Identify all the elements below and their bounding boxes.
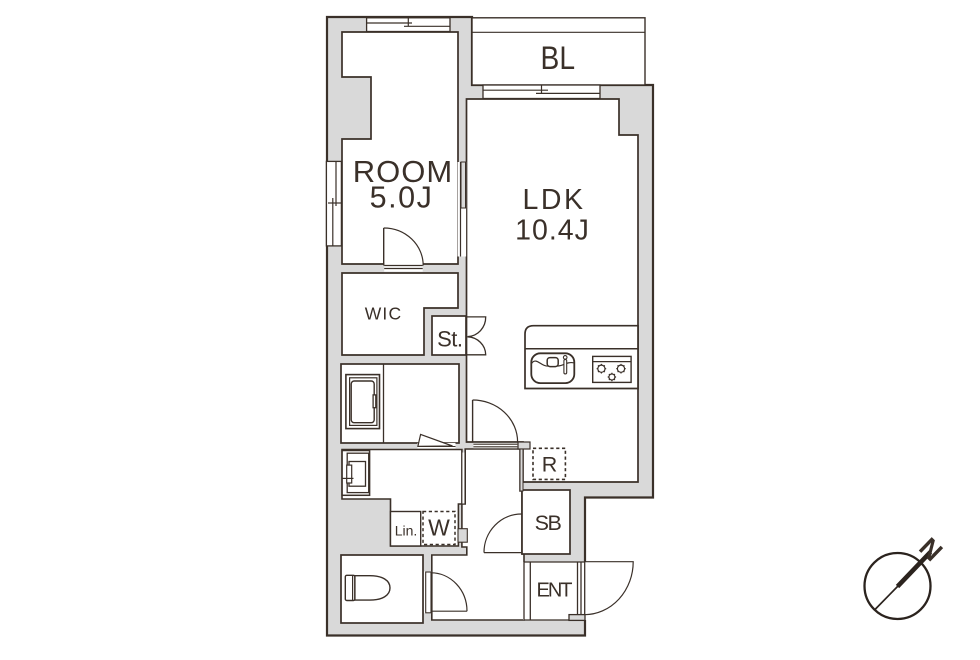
svg-text:10.4J: 10.4J [515,214,590,246]
svg-text:W: W [428,515,450,541]
svg-text:Lin.: Lin. [395,523,418,539]
svg-text:WIC: WIC [365,304,403,324]
svg-text:R: R [542,453,558,477]
svg-text:St.: St. [437,327,462,352]
svg-text:ENT: ENT [537,579,573,601]
svg-text:5.0J: 5.0J [370,180,434,214]
svg-text:LDK: LDK [523,184,586,216]
svg-text:SB: SB [535,511,562,535]
svg-text:BL: BL [541,40,576,76]
